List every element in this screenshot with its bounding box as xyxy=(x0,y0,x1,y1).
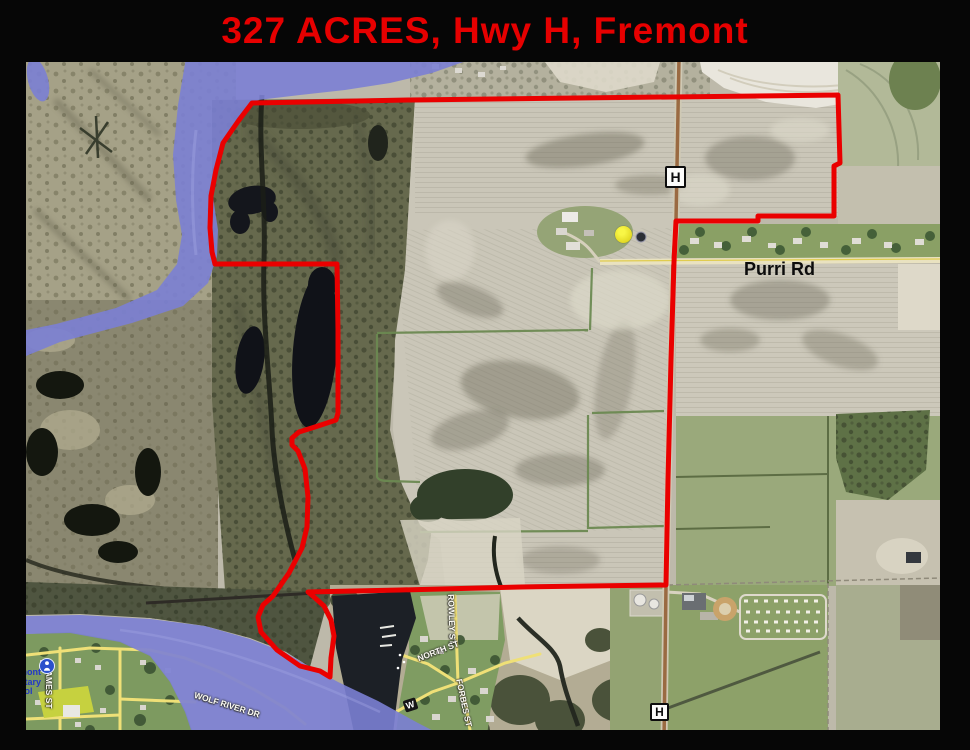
listing-flyer: 327 ACRES, Hwy H, Fremont xyxy=(0,0,970,750)
highway-h-shield-bottom: H xyxy=(650,703,669,721)
title-bar: 327 ACRES, Hwy H, Fremont xyxy=(0,0,970,62)
school-label: mont ntary ool xyxy=(26,668,41,697)
purri-rd-label: Purri Rd xyxy=(744,259,815,280)
purri-road-homes xyxy=(676,224,940,258)
school-label-line3: ool xyxy=(26,687,41,697)
map-graphics xyxy=(26,62,940,730)
page-title: 327 ACRES, Hwy H, Fremont xyxy=(221,10,748,52)
yellow-poi-marker xyxy=(615,226,632,243)
aerial-map: Purri Rd H H JAMES ST ROWLEY ST NORTH ST… xyxy=(26,62,940,730)
east-fields xyxy=(676,264,940,586)
rowley-st-label: ROWLEY ST xyxy=(446,594,458,645)
southeast-facilities xyxy=(630,578,940,730)
school-west-building xyxy=(63,705,80,717)
highway-h-shield-top: H xyxy=(665,166,686,188)
school-icon xyxy=(39,658,55,674)
